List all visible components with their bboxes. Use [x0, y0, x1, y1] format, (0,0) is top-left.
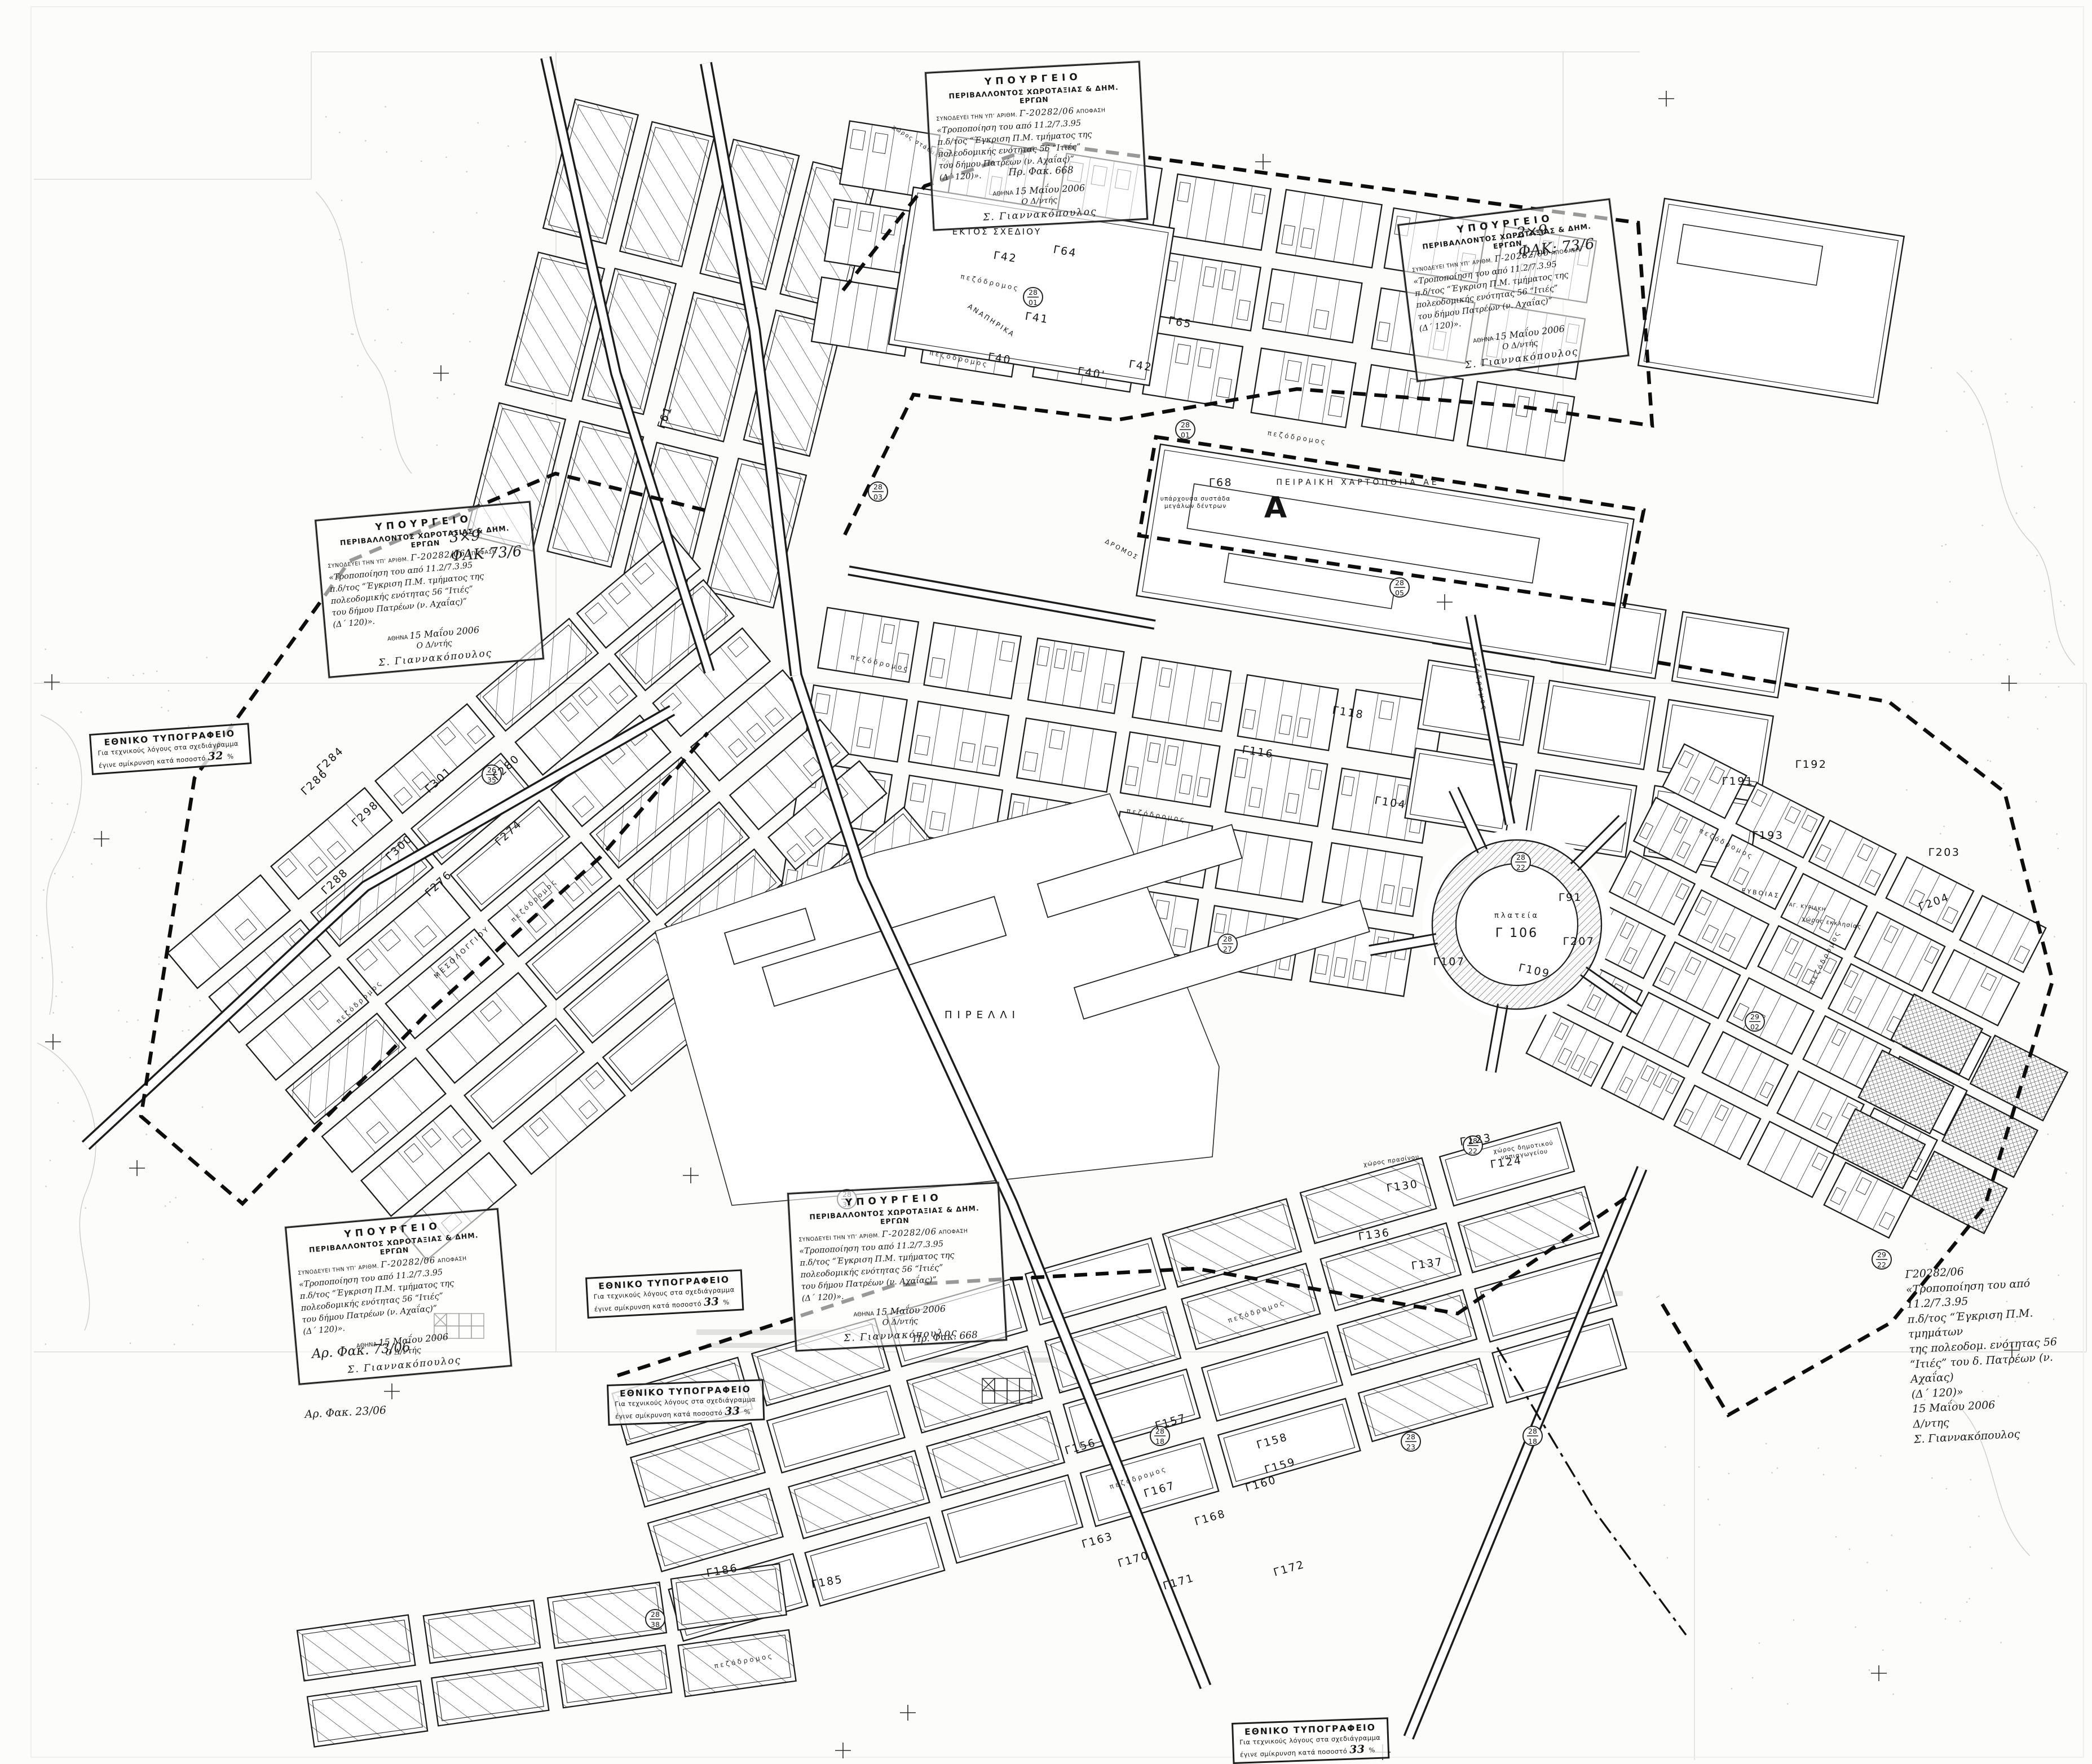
handwritten-note: Πρ. Φακ. 668 — [1008, 165, 1074, 179]
reduction-percent-value: 33 — [725, 1405, 744, 1418]
percent-sign: % — [723, 1298, 730, 1307]
decision-suffix: ΑΠΟΦΑΣΗ — [438, 1255, 467, 1264]
reduction-text: έγινε σμίκρυνση κατά ποσοστό — [1240, 1747, 1348, 1759]
percent-sign: % — [744, 1408, 751, 1416]
reduction-text: έγινε σμίκρυνση κατά ποσοστό — [98, 754, 206, 770]
decision-number: Γ-20282/06 — [881, 1226, 937, 1239]
decision-prefix: ΣΥΝΟΔΕΥΕΙ ΤΗΝ ΥΠ’ ΑΡΙΘΜ. — [936, 112, 1018, 123]
printing-office-stamp: ΕΘΝΙΚΟ ΤΥΠΟΓΡΑΦΕΙΟ Για τεχνικούς λόγους … — [585, 1269, 744, 1318]
reduction-percent-value: 33 — [1349, 1743, 1369, 1756]
ministry-stamp: ΥΠΟΥΡΓΕΙΟ ΠΕΡΙΒΑΛΛΟΝΤΟΣ ΧΩΡΟΤΑΞΙΑΣ & ΔΗΜ… — [1397, 198, 1630, 382]
handwritten-note: 3×9 ΦΑΚ 73/6 — [449, 524, 522, 565]
stamps-layer: ΥΠΟΥΡΓΕΙΟ ΠΕΡΙΒΑΛΛΟΝΤΟΣ ΧΩΡΟΤΑΞΙΑΣ & ΔΗΜ… — [0, 0, 2092, 1764]
printing-office-stamp: ΕΘΝΙΚΟ ΤΥΠΟΓΡΑΦΕΙΟ Για τεχνικούς λόγους … — [89, 723, 251, 775]
decision-prefix: ΣΥΝΟΔΕΥΕΙ ΤΗΝ ΥΠ’ ΑΡΙΘΜ. — [798, 1233, 880, 1244]
decision-number: Γ-20282/06 — [1019, 105, 1074, 118]
printing-office-stamp: ΕΘΝΙΚΟ ΤΥΠΟΓΡΑΦΕΙΟ Για τεχνικούς λόγους … — [607, 1379, 765, 1426]
decision-suffix: ΑΠΟΦΑΣΗ — [1076, 107, 1105, 115]
scanned-map-page: 2801280128032805282228222823283326352922… — [0, 0, 2092, 1764]
reduction-text: έγινε σμίκρυνση κατά ποσοστό — [615, 1409, 723, 1421]
percent-sign: % — [1369, 1746, 1375, 1754]
ministry-stamp: ΥΠΟΥΡΓΕΙΟ ΠΕΡΙΒΑΛΛΟΝΤΟΣ ΧΩΡΟΤΑΞΙΑΣ & ΔΗΜ… — [925, 61, 1148, 231]
stamp-city: ΑΘΗΝΑ — [992, 190, 1013, 197]
ministry-stamp: ΥΠΟΥΡΓΕΙΟ ΠΕΡΙΒΑΛΛΟΝΤΟΣ ΧΩΡΟΤΑΞΙΑΣ & ΔΗΜ… — [787, 1182, 1007, 1351]
handwritten-note: Αρ. Φακ. 23/06 — [304, 1404, 387, 1421]
decision-suffix: ΑΠΟΦΑΣΗ — [938, 1228, 968, 1236]
reduction-percent-value: 32 — [208, 749, 228, 763]
handwritten-annotation-block: Γ20282/06 «Τροποποίηση του από 11.2/7.3.… — [1905, 1258, 2092, 1447]
stamp-city: ΑΘΗΝΑ — [387, 634, 408, 642]
percent-sign: % — [227, 752, 234, 761]
ministry-stamp-body: «Τροποποίηση του από 11.2/7.3.95 π.δ/τος… — [799, 1236, 996, 1305]
stamp-city: ΑΘΗΝΑ — [1473, 336, 1494, 344]
printing-office-stamp: ΕΘΝΙΚΟ ΤΥΠΟΓΡΑΦΕΙΟ Για τεχνικούς λόγους … — [1232, 1717, 1389, 1764]
reduction-text: έγινε σμίκρυνση κατά ποσοστό — [594, 1299, 702, 1313]
reduction-percent-value: 33 — [703, 1295, 723, 1308]
stamp-city: ΑΘΗΝΑ — [853, 1311, 874, 1318]
